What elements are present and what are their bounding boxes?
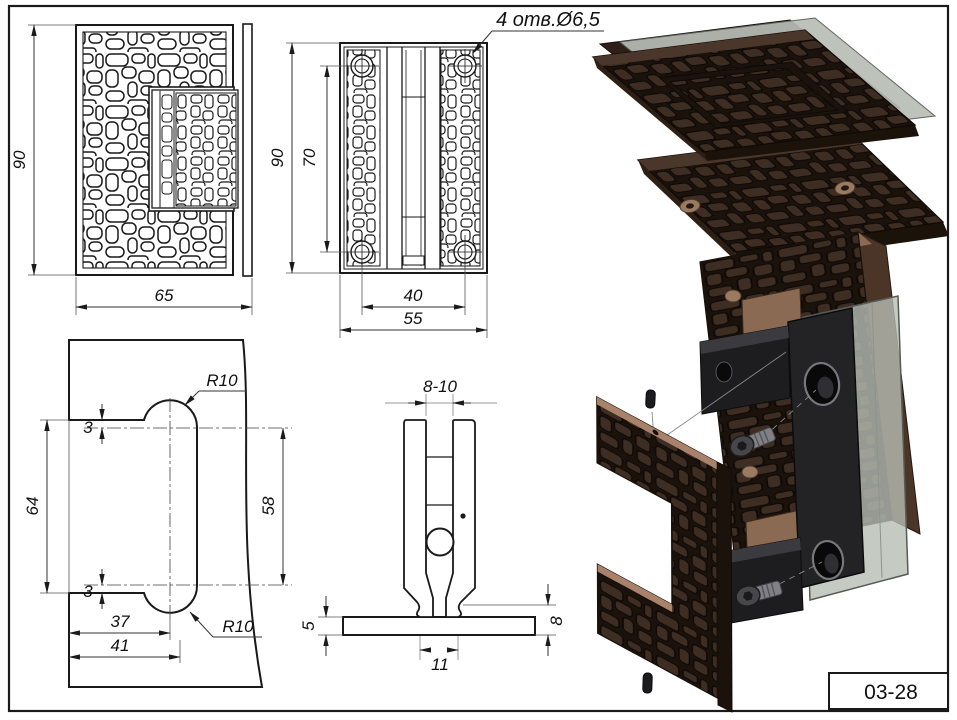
set-screw-top xyxy=(646,390,656,408)
sheet-code: 03-28 xyxy=(864,681,918,704)
dim-slot-depth: 41 xyxy=(111,636,130,655)
dim-lobe-span: 58 xyxy=(259,496,278,515)
view-plate-front: 90 65 xyxy=(10,24,252,315)
title-block: 03-28 xyxy=(829,673,948,709)
dim-edge-offset-top: 3 xyxy=(83,418,93,437)
label-radius-bottom: R10 xyxy=(222,617,254,636)
note-holes: 4 отв.Ø6,5 xyxy=(496,9,601,31)
iso-exp-front-plate xyxy=(597,397,732,712)
dim-hinge-width: 55 xyxy=(404,309,423,328)
render-iso-closed xyxy=(593,18,949,266)
inner-plate-mosaic xyxy=(176,93,236,206)
drawing-sheet: 90 65 xyxy=(0,0,957,720)
dim-hinge-hole-span-v: 70 xyxy=(300,148,319,167)
iso-exp-boss-bottom xyxy=(742,466,758,478)
dim-plate-height: 90 xyxy=(10,150,29,169)
drawing-canvas: 90 65 xyxy=(0,0,957,720)
iso-upper-plate xyxy=(593,18,935,161)
hinge-right-mosaic xyxy=(441,50,480,266)
iso-exp-arm-hole xyxy=(716,362,732,382)
clamp-jaws xyxy=(404,420,475,617)
dim-edge-offset-bottom: 3 xyxy=(83,582,93,601)
label-radius-top: R10 xyxy=(206,371,238,390)
view-clamp-section: 8-10 5 8 11 xyxy=(299,377,566,674)
render-iso-exploded xyxy=(597,232,920,712)
dim-neck-width: 11 xyxy=(431,655,449,674)
hinge-left-mosaic xyxy=(347,50,380,266)
dim-plate-width: 65 xyxy=(155,286,174,305)
dim-hinge-hole-span-h: 40 xyxy=(404,286,423,305)
clamp-pin xyxy=(427,529,454,556)
view-hinge-front: 90 70 40 55 4 отв.Ø6,5 xyxy=(268,9,604,338)
clamp-dot xyxy=(460,513,465,518)
clamp-base-plate xyxy=(343,617,535,635)
view-glass-cutout: 64 58 3 3 37 41 R10 R10 xyxy=(23,340,292,687)
dim-flange-height: 8 xyxy=(547,616,566,626)
glass-edge-strip xyxy=(243,24,252,276)
dim-hinge-height: 90 xyxy=(268,148,287,167)
iso-exp-boss-top xyxy=(725,290,741,302)
dim-glass-gap: 8-10 xyxy=(423,377,458,396)
set-screw-bottom xyxy=(643,673,653,693)
dim-base-thickness: 5 xyxy=(299,621,318,631)
dim-center-depth: 37 xyxy=(111,612,130,631)
dim-notch-height: 64 xyxy=(23,497,42,516)
